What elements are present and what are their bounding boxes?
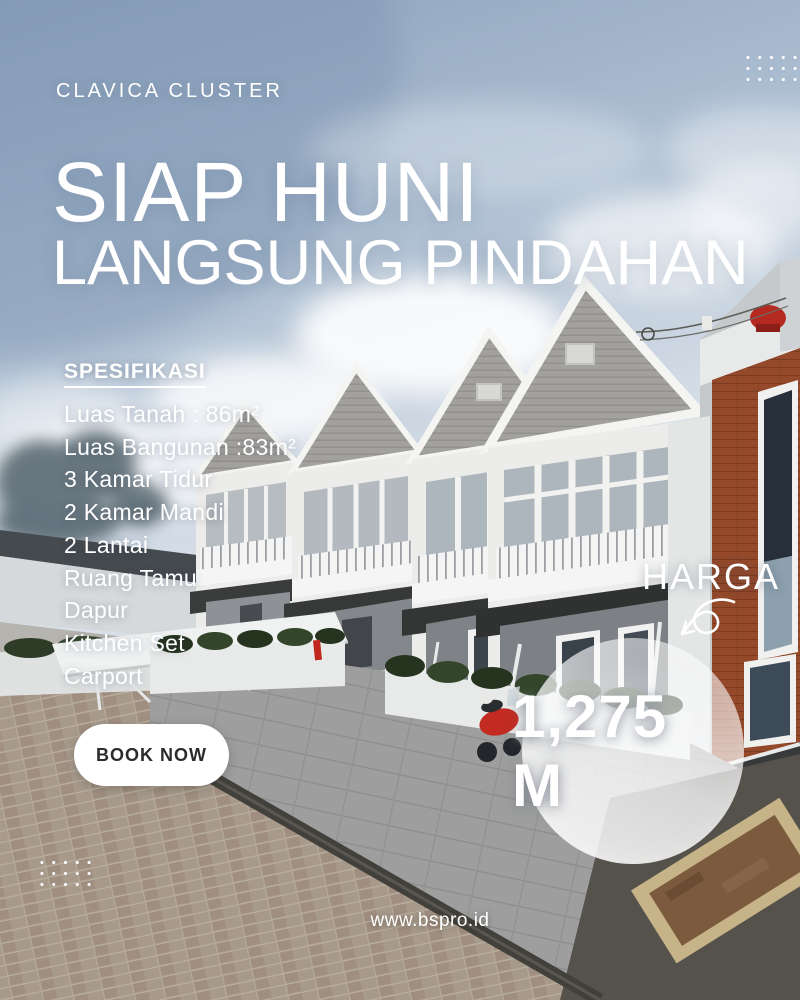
spec-item: 2 Lantai <box>64 529 296 562</box>
dots-decoration-bottom-left <box>36 857 95 890</box>
spec-item: Ruang Tamu <box>64 562 296 595</box>
price-label: HARGA <box>642 556 780 598</box>
dots-decoration-top-right <box>742 52 800 85</box>
specs-panel: SPESIFIKASI Luas Tanah : 86m² Luas Bangu… <box>64 360 296 692</box>
poster-root: CLAVICA CLUSTER SIAP HUNI LANGSUNG PINDA… <box>0 0 800 1000</box>
curved-arrow-icon <box>664 594 740 650</box>
spec-item: Kitchen Set <box>64 627 296 660</box>
specs-list: Luas Tanah : 86m² Luas Bangunan :83m² 3 … <box>64 398 296 692</box>
spec-item: 2 Kamar Mandi <box>64 496 296 529</box>
spec-item: 3 Kamar Tidur <box>64 463 296 496</box>
spec-item: Luas Tanah : 86m² <box>64 398 296 431</box>
spec-item: Carport <box>64 660 296 693</box>
book-now-button[interactable]: BOOK NOW <box>74 724 229 786</box>
spec-item: Luas Bangunan :83m² <box>64 431 296 464</box>
price-badge: 1,275 M <box>522 638 744 864</box>
headline-line2: LANGSUNG PINDAHAN <box>52 232 749 295</box>
price-value: 1,275 M <box>512 682 734 820</box>
spec-item: Dapur <box>64 594 296 627</box>
specs-title: SPESIFIKASI <box>64 360 206 388</box>
headline-line1: SIAP HUNI <box>52 150 480 234</box>
website-url: www.bspro.id <box>330 910 530 932</box>
brand-name: CLAVICA CLUSTER <box>56 80 283 103</box>
